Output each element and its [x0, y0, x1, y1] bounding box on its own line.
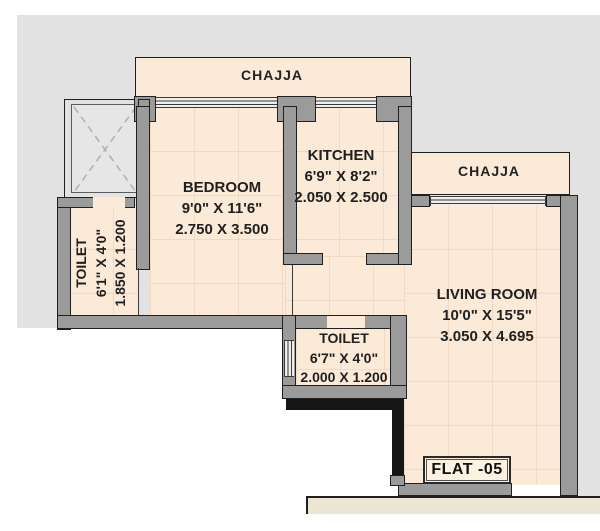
bedroom-dim-m: 2.750 X 3.500	[175, 219, 268, 240]
wall-bedroom-left	[136, 106, 150, 270]
wall-living-bottom	[398, 483, 512, 496]
toilet-left-label: TOILET 6'1" X 4'0" 1.850 X 1.200	[72, 219, 131, 306]
wall-toilet-left-outer	[57, 197, 71, 330]
kitchen-name: KITCHEN	[294, 145, 387, 166]
lift-shaft	[71, 104, 137, 193]
flat-number-box: FLAT -05	[423, 456, 511, 484]
chajja-top-label: CHAJJA	[241, 67, 303, 83]
toilet-left-dim-ft: 6'1" X 4'0"	[91, 219, 111, 306]
lift-shaft-cross-icon	[72, 105, 138, 194]
toilet-bottom-dim-ft: 6'7" X 4'0"	[300, 349, 387, 369]
door-line-bedroom	[292, 265, 293, 315]
door-opening	[93, 197, 125, 208]
room-passage	[285, 256, 404, 317]
wall-corner-block	[390, 475, 405, 486]
flat-number-label: FLAT -05	[431, 461, 502, 479]
bedroom-name: BEDROOM	[175, 177, 268, 198]
wall-pier	[411, 195, 430, 207]
living-room-label: LIVING ROOM 10'0" X 15'5" 3.050 X 4.695	[437, 284, 538, 347]
toilet-bottom-dim-m: 2.000 X 1.200	[300, 368, 387, 388]
floor-plan: FLAT -05 CHAJJA CHAJJA BEDROOM 9'0" X 11…	[0, 0, 600, 531]
kitchen-dim-ft: 6'9" X 8'2"	[294, 166, 387, 187]
wall-kitchen-bottom-left	[283, 253, 323, 265]
black-wall-vertical	[392, 399, 404, 475]
bedroom-label: BEDROOM 9'0" X 11'6" 2.750 X 3.500	[175, 177, 268, 240]
bedroom-dim-ft: 9'0" X 11'6"	[175, 198, 268, 219]
window-top	[135, 97, 412, 108]
kitchen-dim-m: 2.050 X 2.500	[294, 187, 387, 208]
toilet-bottom-label: TOILET 6'7" X 4'0" 2.000 X 1.200	[300, 329, 387, 388]
window-living-top	[430, 196, 546, 206]
kitchen-label: KITCHEN 6'9" X 8'2" 2.050 X 2.500	[294, 145, 387, 208]
plot-backdrop-right-strip	[578, 328, 600, 496]
toilet-bottom-name: TOILET	[300, 329, 387, 349]
chajja-bottom-strip	[306, 496, 600, 514]
toilet-left-name: TOILET	[72, 219, 92, 306]
door-line-toilet-left	[138, 268, 139, 315]
wall-living-right	[560, 195, 578, 496]
living-room-dim-ft: 10'0" X 15'5"	[437, 305, 538, 326]
toilet-left-dim-m: 1.850 X 1.200	[111, 219, 131, 306]
chajja-right-label: CHAJJA	[458, 163, 520, 179]
living-room-name: LIVING ROOM	[437, 284, 538, 305]
door-opening-toilet	[327, 316, 365, 328]
living-room-dim-m: 3.050 X 4.695	[437, 326, 538, 347]
wall-kitchen-right	[398, 106, 412, 265]
window-toilet	[284, 340, 294, 377]
black-wall-horizontal	[286, 399, 404, 410]
